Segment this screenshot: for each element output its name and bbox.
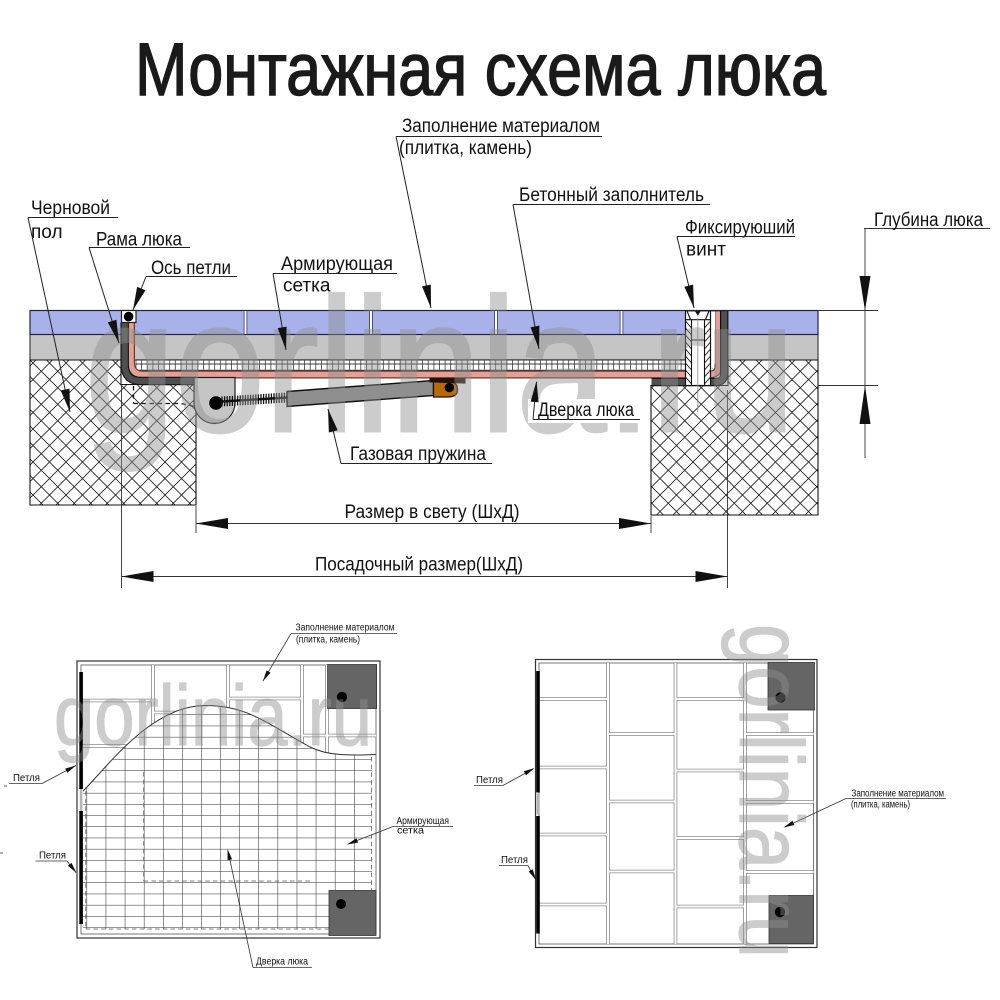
svg-text:Газовая пружина: Газовая пружина	[350, 444, 486, 465]
svg-text:Глубина люка: Глубина люка	[874, 210, 983, 231]
svg-text:gorlinia.ru: gorlinia.ru	[54, 669, 372, 764]
svg-text:Петля: Петля	[39, 851, 66, 862]
svg-text:Заполнение материалом: Заполнение материалом	[296, 623, 395, 634]
svg-text:Бетонный заполнитель: Бетонный заполнитель	[519, 185, 704, 206]
svg-text:Ось петли: Ось петли	[151, 258, 231, 279]
svg-text:пол: пол	[31, 222, 63, 243]
svg-text:Заполнение материалом: Заполнение материалом	[852, 789, 945, 800]
svg-text:(плитка, камень): (плитка, камень)	[399, 138, 532, 159]
svg-text:сетка: сетка	[283, 276, 331, 297]
svg-text:Дверка люка: Дверка люка	[538, 400, 634, 421]
svg-text:Монтажная схема люка: Монтажная схема люка	[135, 28, 827, 111]
svg-text:винт: винт	[686, 240, 726, 261]
svg-text:Петля: Петля	[476, 775, 503, 786]
svg-text:Петля: Петля	[501, 855, 528, 866]
svg-text:(плитка, камень): (плитка, камень)	[851, 800, 910, 811]
svg-text:Размер в свету (ШхД): Размер в свету (ШхД)	[345, 502, 520, 523]
svg-text:Армирующая: Армирующая	[281, 254, 393, 275]
svg-text:(плитка, камень): (плитка, камень)	[296, 635, 360, 646]
svg-text:Фиксируюший: Фиксируюший	[685, 218, 795, 239]
svg-text:gorlinia.ru: gorlinia.ru	[720, 624, 820, 958]
svg-text:сетка: сетка	[397, 826, 424, 837]
svg-text:Заполнение материалом: Заполнение материалом	[402, 116, 600, 137]
svg-text:Дверка люка: Дверка люка	[256, 957, 308, 968]
svg-text:Петля: Петля	[13, 773, 40, 784]
svg-text:Черновой: Черновой	[31, 198, 110, 219]
svg-text:Посадочный размер(ШхД): Посадочный размер(ШхД)	[315, 555, 523, 576]
